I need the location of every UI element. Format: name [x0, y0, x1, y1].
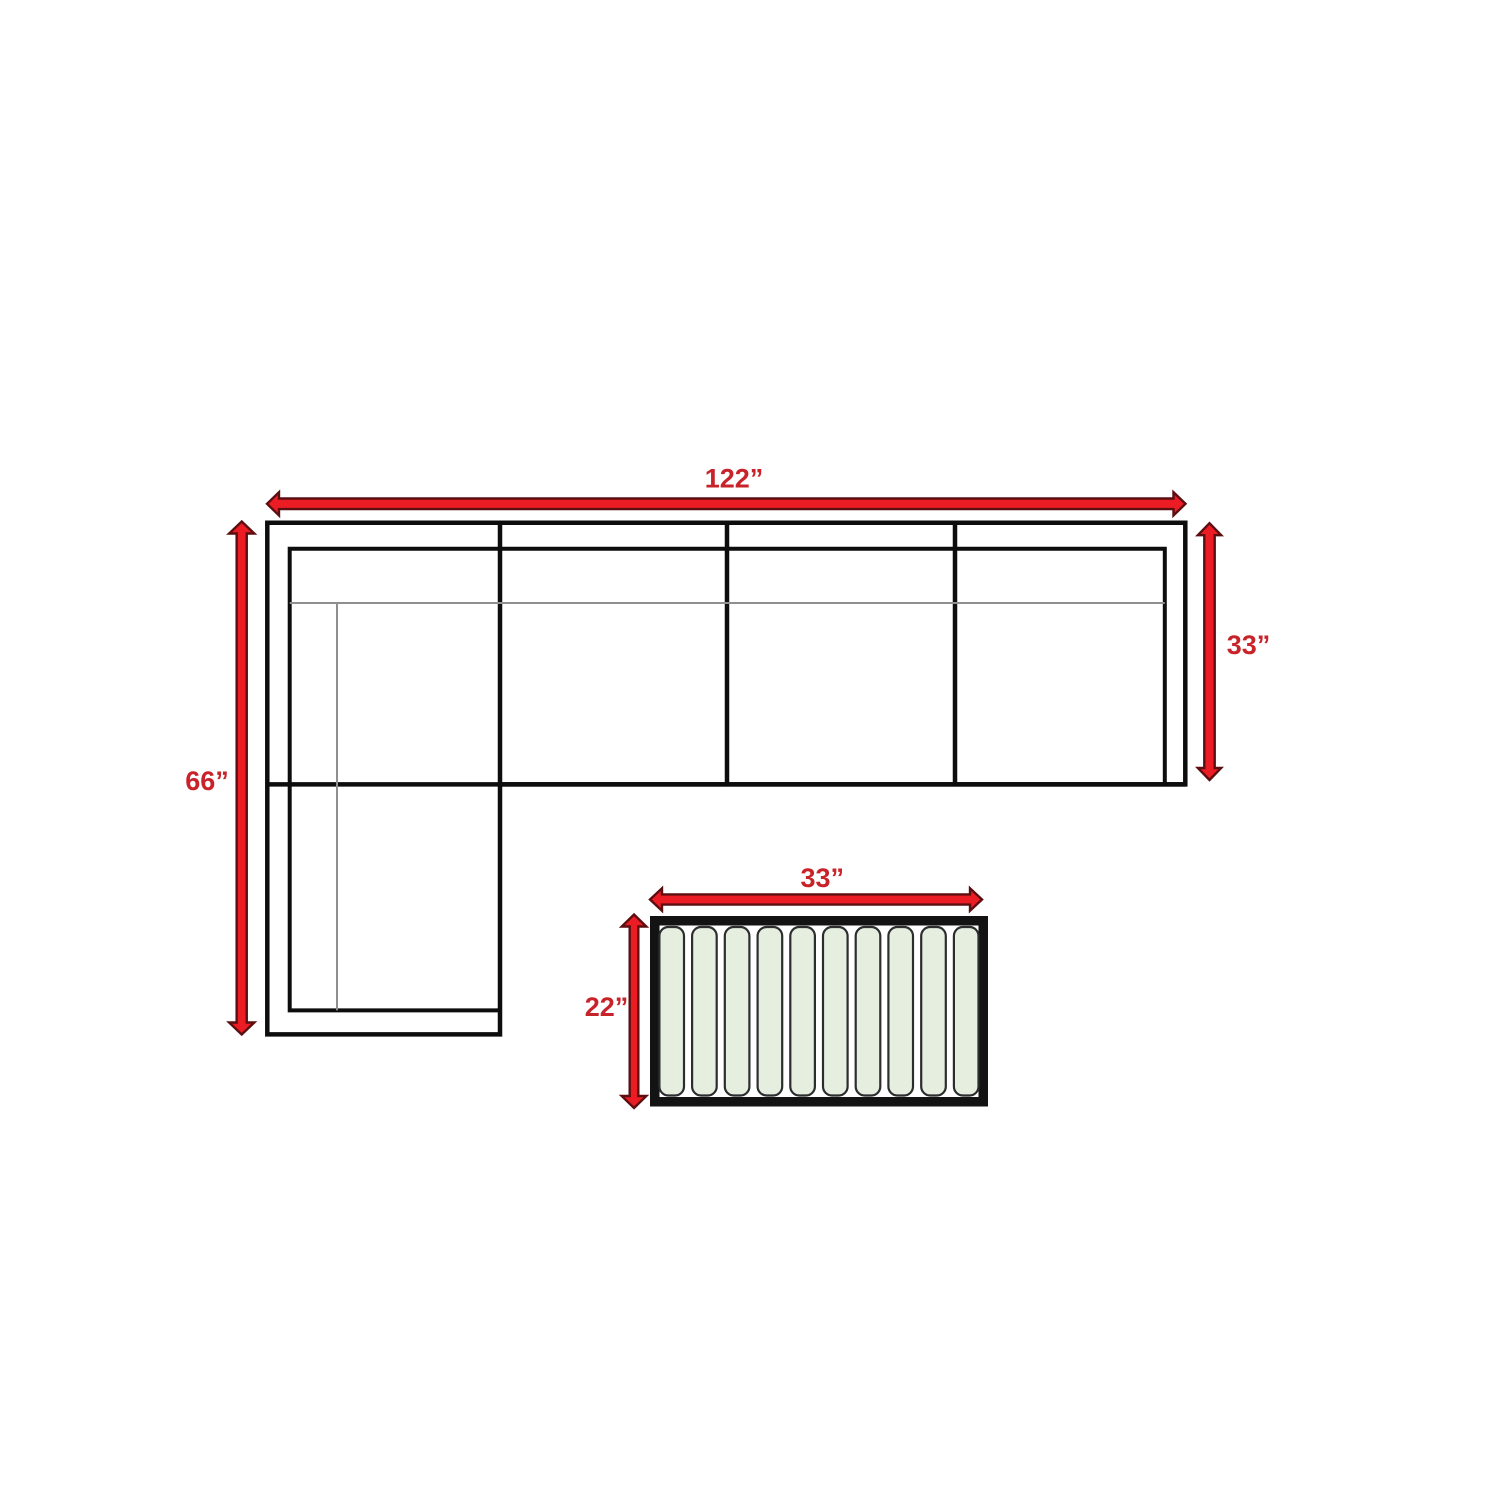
- svg-text:122”: 122”: [705, 464, 764, 494]
- svg-text:33”: 33”: [1227, 630, 1271, 660]
- svg-text:33”: 33”: [801, 863, 845, 893]
- svg-text:22”: 22”: [585, 992, 629, 1022]
- svg-text:66”: 66”: [185, 766, 229, 796]
